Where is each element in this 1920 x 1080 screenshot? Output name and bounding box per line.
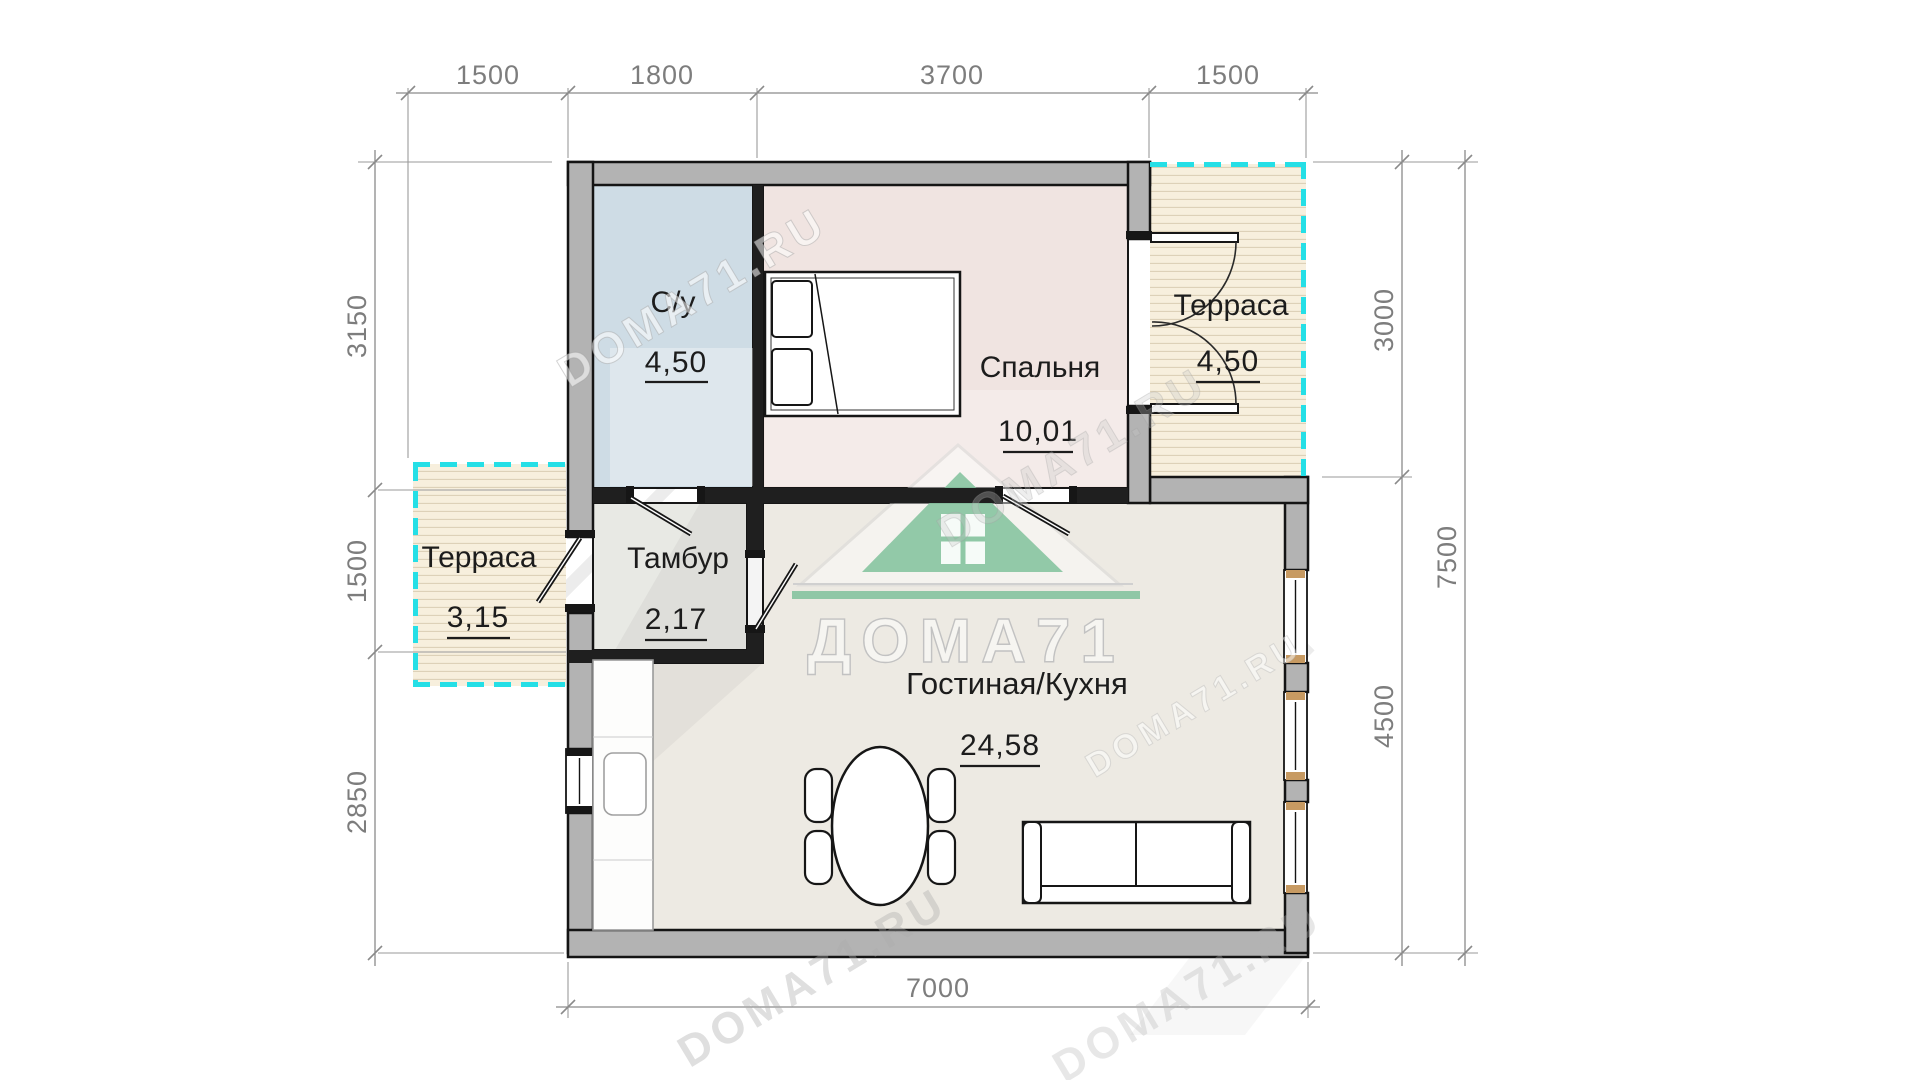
terrace-left-floor bbox=[413, 464, 566, 686]
jamb-french-door-top bbox=[1126, 231, 1152, 239]
wall-left-middle bbox=[568, 613, 593, 749]
sofa-armrest-left bbox=[1023, 822, 1041, 903]
wall-right-pier-3 bbox=[1285, 780, 1308, 802]
chair-left-bottom bbox=[805, 831, 832, 884]
dim-top-3: 3700 bbox=[920, 60, 984, 90]
floor-plan-drawing: ДОМА71 bbox=[0, 0, 1920, 1080]
chair-right-bottom bbox=[928, 831, 955, 884]
dim-top-2: 1800 bbox=[630, 60, 694, 90]
area-tambour: 2,17 bbox=[645, 603, 707, 636]
area-terrace-left: 3,15 bbox=[447, 601, 509, 634]
jamb-terrace-door-bottom bbox=[565, 604, 595, 612]
wall-bedroom-bottom-pier bbox=[1077, 488, 1128, 503]
label-terrace-left: Терраса bbox=[421, 541, 536, 574]
wall-bedroom-right-upper bbox=[1128, 162, 1150, 239]
wall-terrace-bottom bbox=[1150, 477, 1308, 503]
dim-left-2: 1500 bbox=[342, 539, 372, 603]
jamb-bath-door-right bbox=[697, 486, 705, 504]
label-living: Гостиная/Кухня bbox=[906, 666, 1128, 701]
dim-top-1: 1500 bbox=[456, 60, 520, 90]
wall-top bbox=[568, 162, 1150, 185]
jamb-tambour-door-top bbox=[745, 550, 765, 558]
jamb-terrace-door-top bbox=[565, 530, 595, 538]
dim-left-1: 3150 bbox=[342, 294, 372, 358]
dim-left-3: 2850 bbox=[342, 770, 372, 834]
bed bbox=[765, 272, 960, 416]
label-bedroom: Спальня bbox=[980, 351, 1101, 384]
floor-plan-page: ДОМА71 bbox=[0, 0, 1920, 1080]
area-living: 24,58 bbox=[960, 729, 1040, 762]
dim-bottom-1: 7000 bbox=[906, 973, 970, 1003]
jamb-bedroom-door-right bbox=[1069, 486, 1077, 504]
sofa bbox=[1023, 822, 1250, 903]
dim-right-total: 7500 bbox=[1432, 525, 1462, 589]
chair-right-top bbox=[928, 769, 955, 822]
dim-right-2: 4500 bbox=[1369, 684, 1399, 748]
kitchen-counter bbox=[593, 660, 653, 930]
pillow-2 bbox=[772, 349, 812, 405]
dining-table bbox=[832, 747, 928, 905]
dim-right-1: 3000 bbox=[1369, 288, 1399, 352]
pillow-1 bbox=[772, 281, 812, 337]
label-terrace-right: Терраса bbox=[1173, 289, 1288, 322]
label-tambour: Тамбур bbox=[627, 542, 729, 575]
wall-tambour-right-upper bbox=[747, 503, 763, 550]
area-terrace-right: 4,50 bbox=[1197, 345, 1259, 378]
wall-bath-bottom-left bbox=[593, 488, 630, 503]
window-right-2 bbox=[1284, 692, 1307, 780]
window-left-wall bbox=[566, 749, 593, 813]
window-right-3 bbox=[1284, 802, 1307, 893]
area-bathroom: 4,50 bbox=[645, 346, 707, 379]
dim-top-4: 1500 bbox=[1196, 60, 1260, 90]
wall-bottom bbox=[568, 930, 1308, 957]
sofa-armrest-right bbox=[1232, 822, 1250, 903]
chair-left-top bbox=[805, 769, 832, 822]
sink bbox=[604, 753, 646, 815]
logo-bar-green bbox=[792, 591, 1140, 599]
